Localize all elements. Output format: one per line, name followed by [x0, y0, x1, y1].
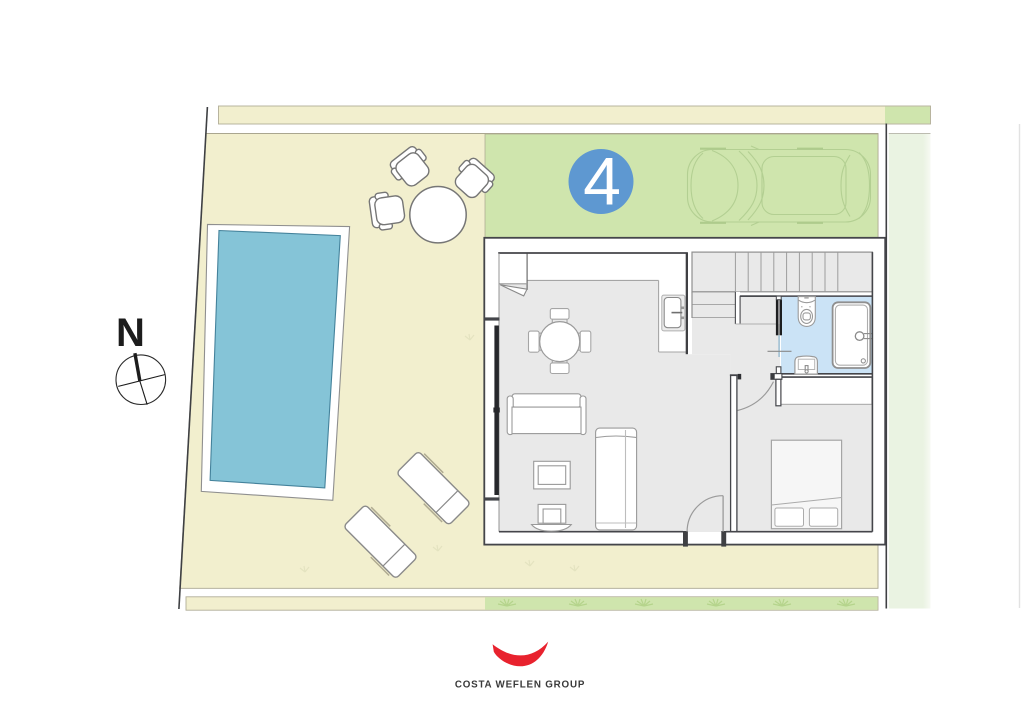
svg-text:N: N [116, 311, 145, 355]
svg-text:4: 4 [583, 144, 621, 220]
svg-text:COSTA WEFLEN GROUP: COSTA WEFLEN GROUP [455, 679, 585, 690]
